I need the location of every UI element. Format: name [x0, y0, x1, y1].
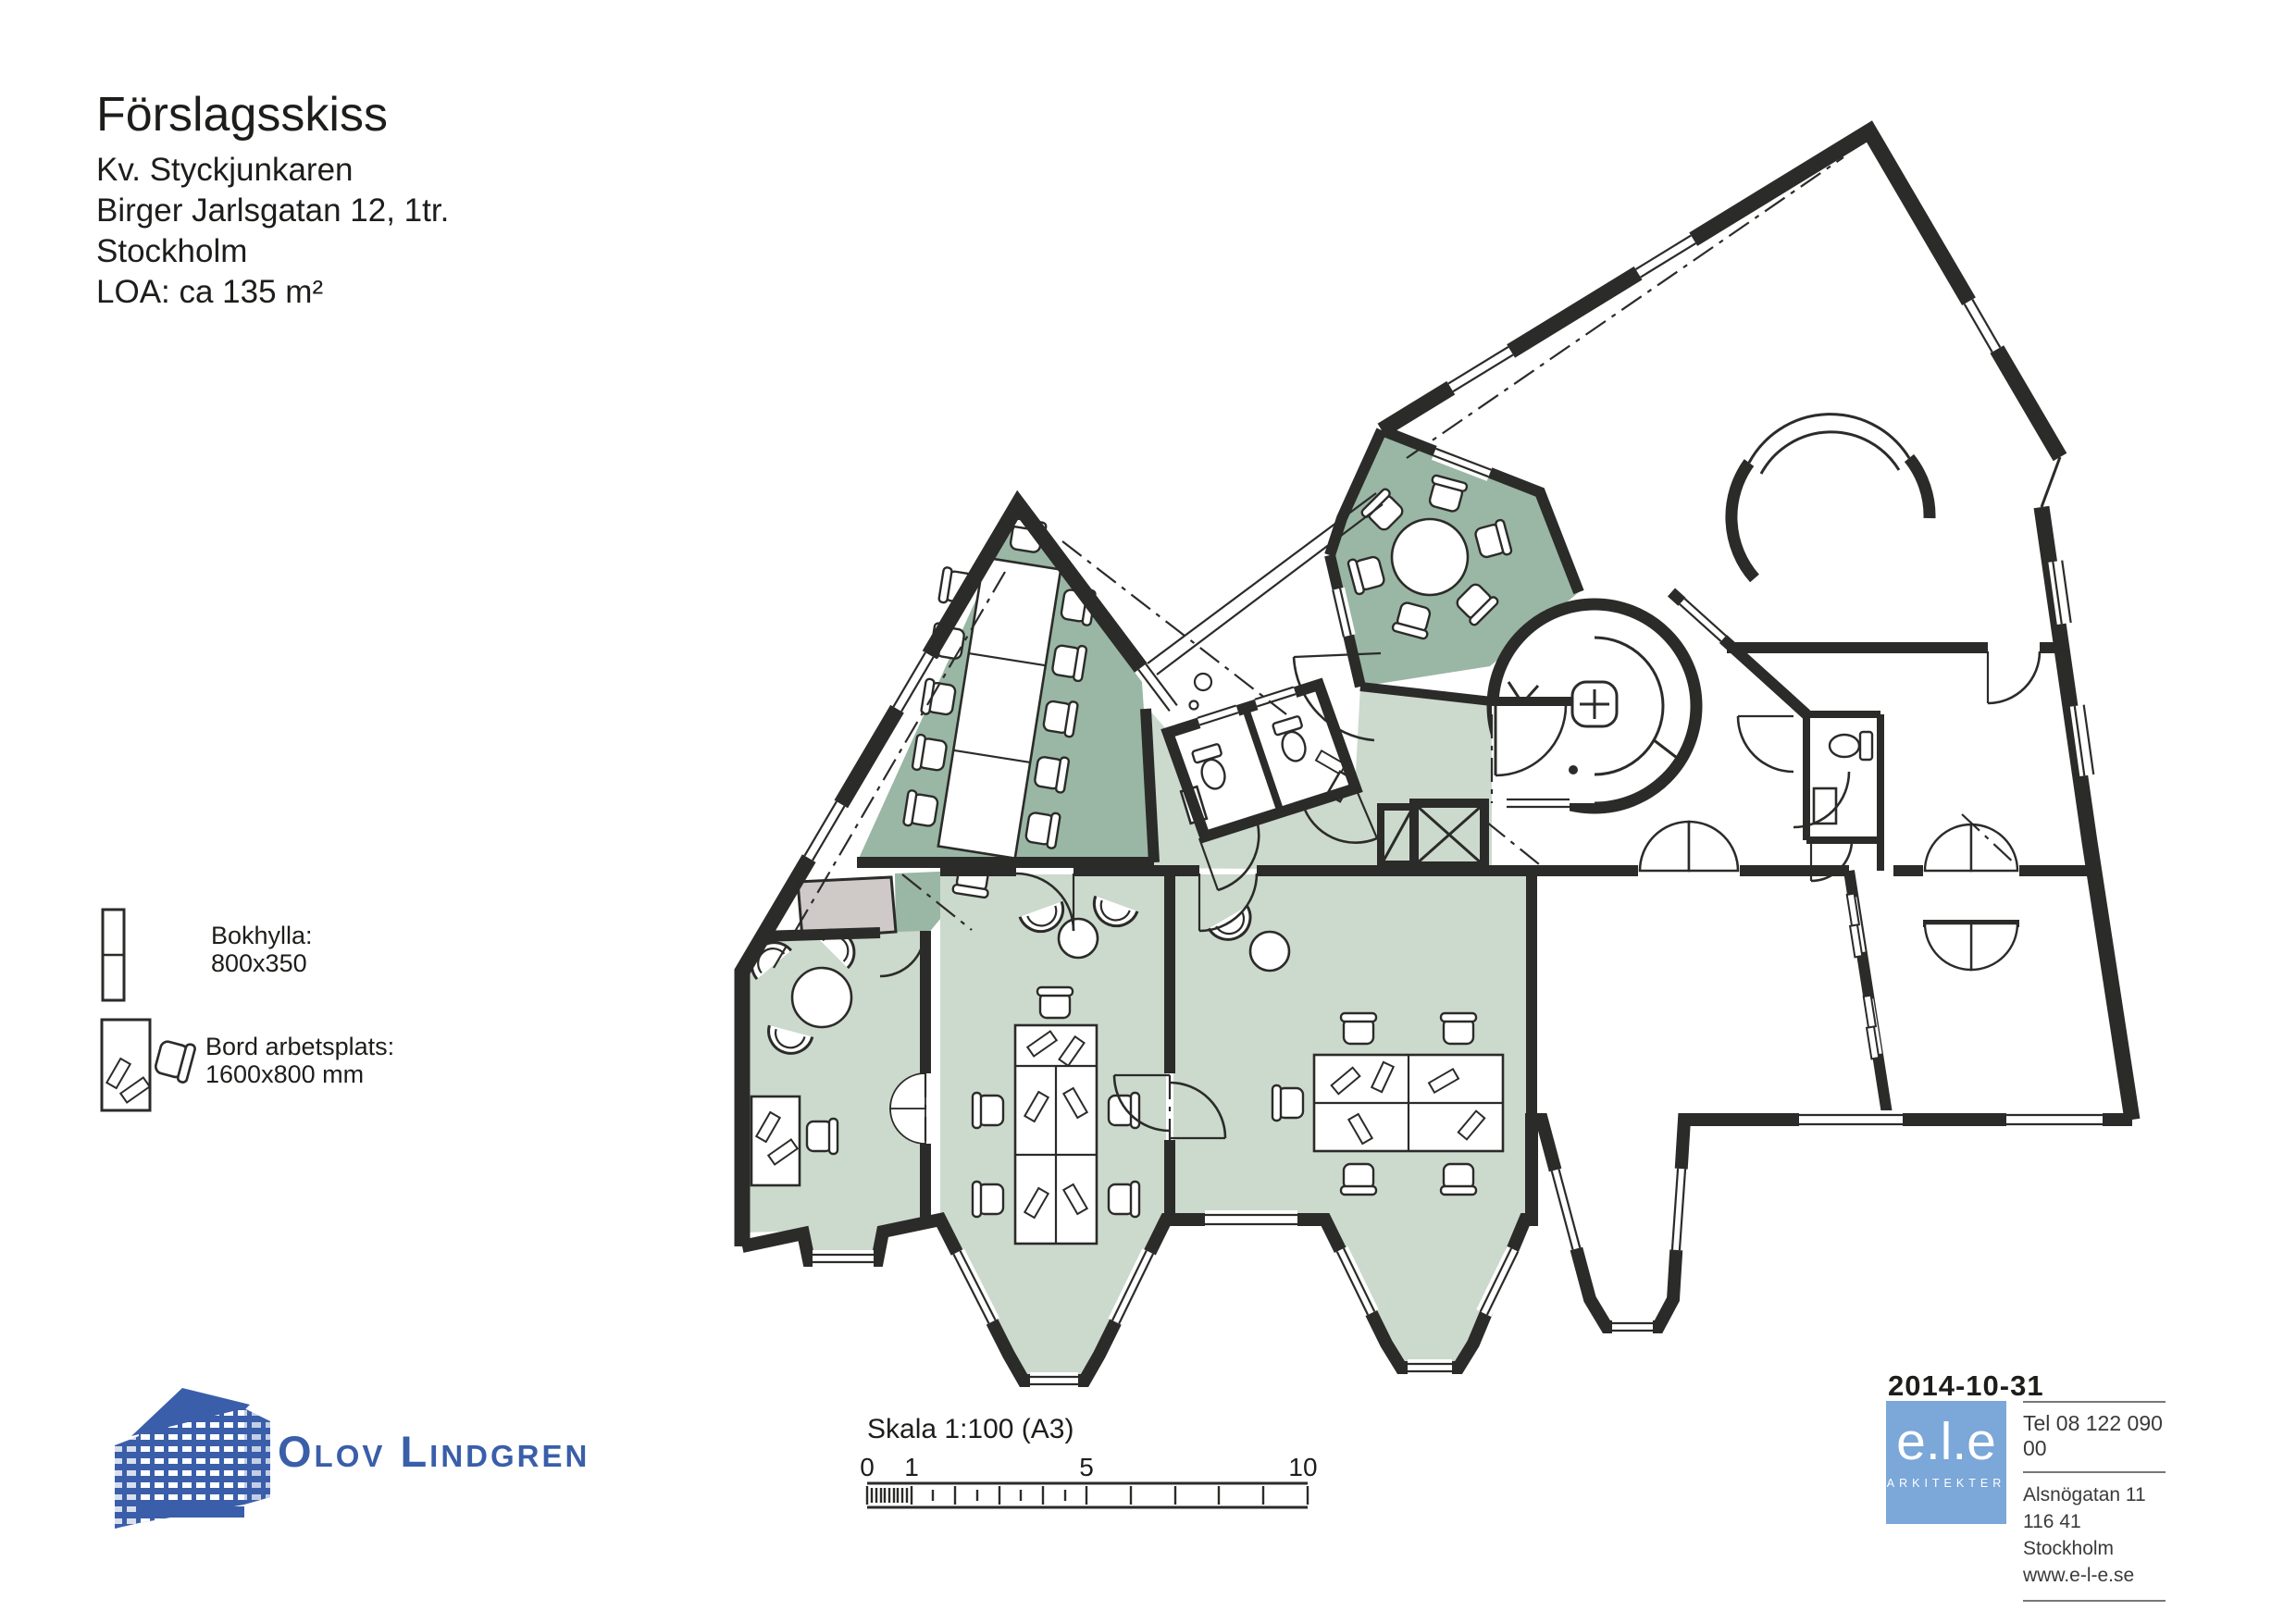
title-line-city: Stockholm: [96, 231, 449, 272]
scale-tick-1: 1: [904, 1453, 919, 1482]
legend-item-desk: Bord arbetsplats: 1600x800 mm: [205, 1033, 394, 1088]
title-line-area: LOA: ca 135 m²: [96, 272, 449, 313]
scale-tick-10: 10: [1288, 1453, 1317, 1482]
title-line-kvarter: Kv. Styckjunkaren: [96, 150, 449, 191]
spiral-stair: [1492, 604, 1696, 808]
contact-address: Alsnögatan 11 116 41 Stockholm www.e-l-e…: [2023, 1473, 2166, 1600]
scale-label: Skala 1:100 (A3): [867, 1414, 1074, 1445]
curved-partition: [1731, 415, 1930, 578]
olov-lindgren-building-icon: [115, 1388, 270, 1529]
bookshelf-icon: [103, 910, 124, 1000]
ele-logo-name: e.l.e: [1886, 1414, 2006, 1469]
legend-desk-dims: 1600x800 mm: [205, 1060, 394, 1088]
contact-divider-bottom: [2023, 1600, 2166, 1602]
contact-web: www.e-l-e.se: [2023, 1562, 2166, 1589]
legend-desk-label: Bord arbetsplats:: [205, 1033, 394, 1060]
page-title: Förslagsskiss: [96, 87, 449, 142]
ele-logo-subtitle: ARKITEKTER: [1886, 1477, 2006, 1490]
title-block: Förslagsskiss Kv. Styckjunkaren Birger J…: [96, 87, 449, 313]
contact-street: Alsnögatan 11: [2023, 1481, 2166, 1508]
right-wc-fixtures: [1814, 732, 1872, 824]
contact-city: 116 41 Stockholm: [2023, 1508, 2166, 1562]
title-line-address: Birger Jarlsgatan 12, 1tr.: [96, 191, 449, 231]
desk-workplace-icon: [102, 1020, 196, 1110]
legend-icons: [102, 910, 196, 1110]
drawing-date: 2014-10-31: [1888, 1369, 2044, 1403]
olov-lindgren-wordmark: Olov Lindgren: [278, 1426, 590, 1477]
scale-tick-0: 0: [860, 1453, 875, 1482]
contact-phone: Tel 08 122 090 00: [2023, 1403, 2166, 1471]
contact-block: Tel 08 122 090 00 Alsnögatan 11 116 41 S…: [2023, 1401, 2166, 1602]
ele-arkitekter-logo: e.l.e ARKITEKTER: [1886, 1401, 2006, 1524]
legend-bookshelf-label: Bokhylla:: [211, 922, 313, 949]
scale-tick-5: 5: [1079, 1453, 1094, 1482]
scale-bar: [867, 1483, 1308, 1507]
legend-bookshelf-dims: 800x350: [211, 949, 313, 977]
legend-item-bookshelf: Bokhylla: 800x350: [211, 922, 313, 977]
